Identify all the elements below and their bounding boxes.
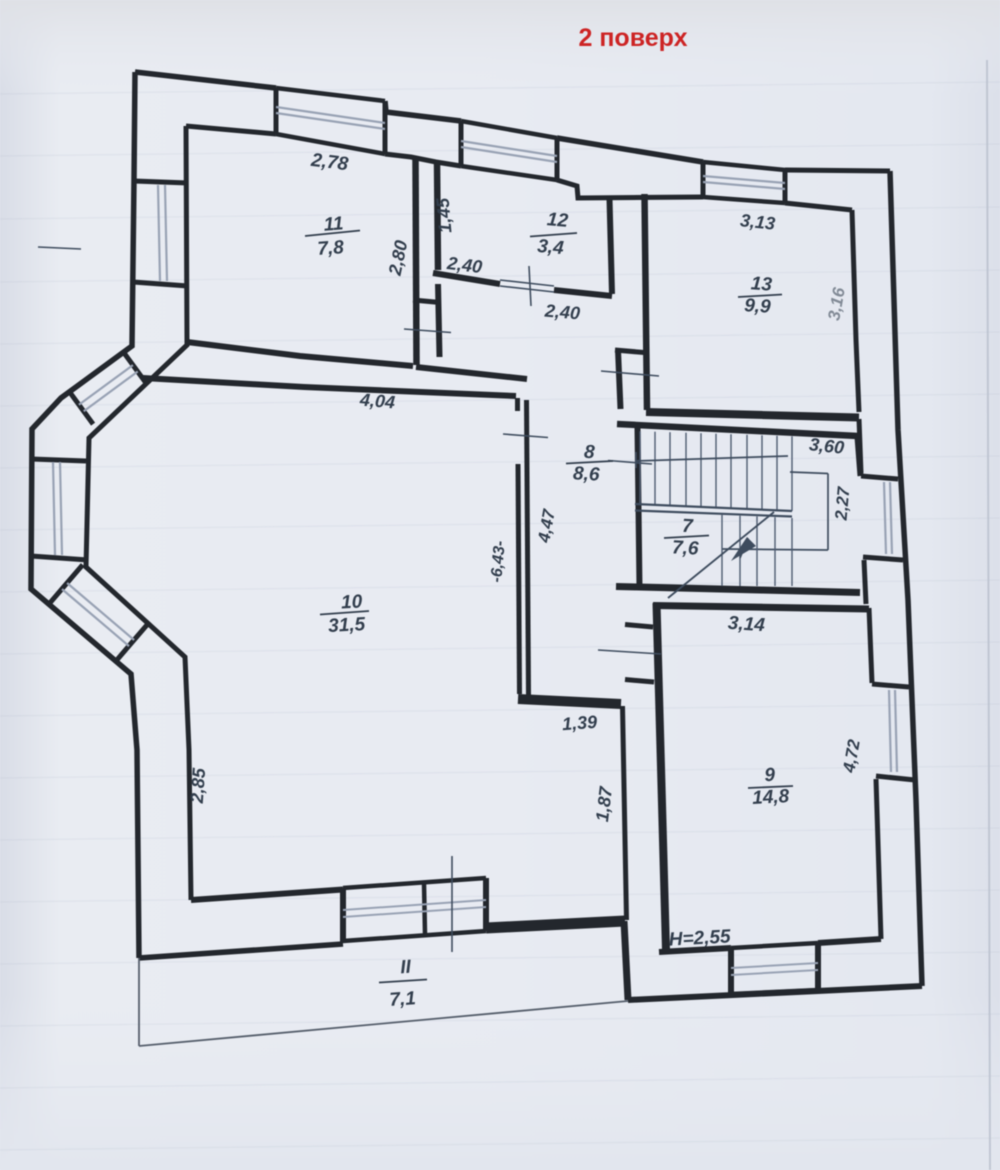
svg-text:13: 13: [750, 273, 773, 295]
svg-text:2,85: 2,85: [187, 766, 210, 804]
svg-text:H=2,55: H=2,55: [668, 926, 731, 950]
svg-text:2 поверх: 2 поверх: [578, 24, 687, 52]
svg-text:9,9: 9,9: [743, 295, 771, 318]
svg-text:1,39: 1,39: [561, 712, 597, 734]
svg-text:3,13: 3,13: [739, 210, 776, 234]
svg-text:14,8: 14,8: [752, 786, 790, 809]
svg-text:3,14: 3,14: [727, 613, 766, 637]
svg-text:2,27: 2,27: [832, 485, 854, 522]
svg-text:10: 10: [341, 591, 364, 613]
svg-text:2,40: 2,40: [543, 300, 581, 323]
svg-text:4,04: 4,04: [358, 389, 396, 412]
svg-text:7,8: 7,8: [317, 237, 345, 260]
svg-text:7,6: 7,6: [672, 537, 700, 559]
svg-text:3,60: 3,60: [808, 434, 845, 458]
svg-text:8,6: 8,6: [573, 463, 601, 485]
svg-text:8: 8: [583, 442, 595, 464]
svg-text:12: 12: [546, 209, 569, 232]
svg-text:1,45: 1,45: [432, 196, 455, 234]
svg-text:-6,43-: -6,43-: [488, 540, 509, 583]
svg-text:7,1: 7,1: [389, 988, 417, 1011]
svg-text:9: 9: [764, 765, 776, 787]
svg-text:3,4: 3,4: [536, 236, 565, 259]
svg-text:31,5: 31,5: [328, 614, 366, 637]
